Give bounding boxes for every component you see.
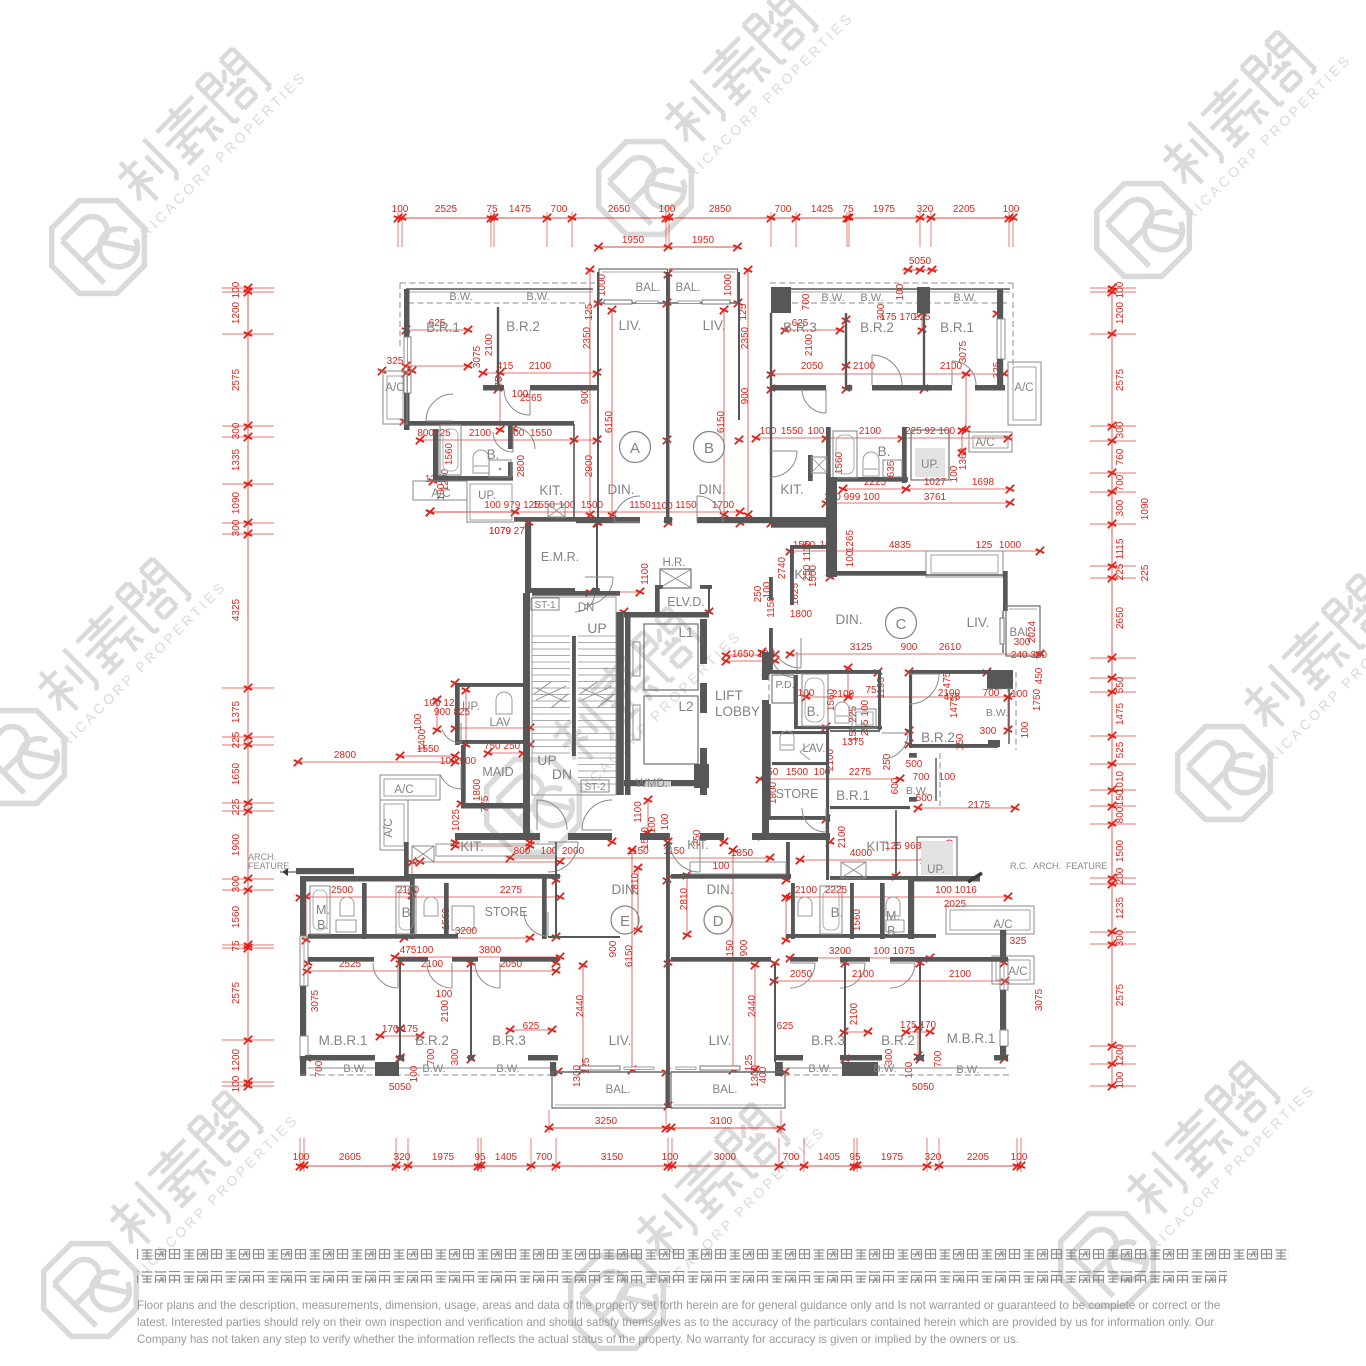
svg-text:LAV.: LAV. (802, 743, 825, 755)
svg-text:UP.: UP. (478, 490, 496, 502)
svg-text:B.R.2: B.R.2 (506, 319, 540, 334)
svg-text:B.W.: B.W. (526, 291, 549, 303)
svg-text:1425: 1425 (811, 204, 834, 215)
svg-text:1750: 1750 (1032, 688, 1043, 711)
svg-text:2525: 2525 (435, 204, 458, 215)
svg-text:M.: M. (316, 903, 330, 917)
svg-text:900: 900 (901, 642, 918, 653)
svg-text:100: 100 (798, 688, 815, 699)
svg-text:FEATURE: FEATURE (248, 861, 289, 871)
svg-text:6150: 6150 (716, 410, 727, 433)
svg-text:100: 100 (1115, 281, 1126, 298)
svg-text:B.R.3: B.R.3 (492, 1033, 526, 1048)
svg-text:1150: 1150 (629, 500, 651, 511)
svg-text:100: 100 (659, 204, 676, 215)
svg-text:E.M.R.: E.M.R. (541, 550, 579, 564)
svg-text:900: 900 (740, 387, 751, 404)
svg-text:3761: 3761 (924, 492, 947, 503)
svg-text:2100: 2100 (837, 825, 848, 848)
svg-text:1550: 1550 (533, 500, 556, 511)
svg-text:100: 100 (939, 772, 956, 783)
svg-text:1500: 1500 (1115, 839, 1126, 862)
svg-text:300: 300 (1115, 929, 1126, 946)
svg-text:1200: 1200 (1115, 1043, 1126, 1066)
svg-text:300: 300 (450, 1048, 461, 1065)
svg-text:625: 625 (777, 1021, 794, 1032)
svg-text:100: 100 (904, 1061, 915, 1078)
svg-text:1150: 1150 (675, 500, 697, 511)
svg-text:A/C: A/C (394, 784, 413, 796)
svg-text:B.W.: B.W. (906, 785, 928, 797)
svg-text:2440: 2440 (747, 994, 758, 1017)
svg-text:2605: 2605 (339, 1152, 362, 1163)
svg-text:1200: 1200 (231, 301, 242, 324)
svg-text:BAL.: BAL. (713, 1084, 738, 1096)
svg-text:B.: B. (487, 447, 500, 462)
svg-text:1698: 1698 (972, 477, 995, 488)
svg-text:1079: 1079 (489, 526, 512, 537)
svg-text:1800: 1800 (790, 609, 813, 620)
svg-text:KIT.: KIT. (780, 482, 803, 497)
svg-text:1550: 1550 (781, 426, 804, 437)
svg-text:2740: 2740 (777, 556, 788, 579)
svg-text:300: 300 (1115, 499, 1126, 516)
svg-text:225: 225 (1115, 563, 1126, 580)
svg-text:320: 320 (925, 1152, 942, 1163)
svg-text:B.W.: B.W. (821, 292, 844, 304)
svg-text:150: 150 (1115, 789, 1126, 806)
svg-text:700: 700 (1115, 474, 1126, 491)
svg-text:3150: 3150 (601, 1152, 624, 1163)
svg-text:2650: 2650 (1115, 606, 1126, 629)
svg-text:1000: 1000 (999, 540, 1022, 551)
svg-text:1335: 1335 (231, 448, 242, 471)
svg-text:3075: 3075 (1034, 988, 1045, 1011)
svg-text:1115: 1115 (1115, 538, 1126, 559)
svg-text:2205: 2205 (953, 204, 976, 215)
svg-text:700: 700 (536, 1152, 553, 1163)
svg-text:1090: 1090 (1140, 497, 1151, 520)
svg-text:2610: 2610 (939, 642, 962, 653)
svg-text:225: 225 (231, 731, 242, 748)
svg-text:3125: 3125 (850, 642, 873, 653)
svg-text:LIV.: LIV. (703, 318, 726, 333)
svg-text:2175: 2175 (968, 800, 991, 811)
svg-text:5050: 5050 (912, 1082, 935, 1093)
svg-text:2800: 2800 (516, 454, 527, 477)
svg-text:DIN.: DIN. (612, 882, 639, 897)
svg-text:2100: 2100 (440, 999, 451, 1022)
svg-text:100: 100 (231, 281, 242, 298)
svg-text:DN: DN (552, 766, 572, 782)
svg-text:P.D.: P.D. (775, 679, 794, 691)
svg-text:2350: 2350 (740, 326, 751, 349)
svg-text:R.C. ARCH. FEATURE: R.C. ARCH. FEATURE (1010, 861, 1107, 871)
svg-text:B.W.: B.W. (860, 292, 883, 304)
svg-text:B.W.: B.W. (986, 707, 1008, 719)
svg-text:1400: 1400 (417, 728, 428, 751)
svg-text:300: 300 (231, 422, 242, 439)
svg-text:800: 800 (1115, 806, 1126, 823)
svg-text:300: 300 (876, 303, 887, 320)
svg-text:1100: 1100 (633, 801, 644, 823)
svg-text:KIT.: KIT. (539, 483, 562, 498)
svg-text:1560: 1560 (444, 442, 455, 465)
svg-text:1950: 1950 (622, 235, 645, 246)
svg-text:2575: 2575 (231, 368, 242, 391)
svg-text:2275: 2275 (500, 885, 523, 896)
svg-text:3800: 3800 (479, 945, 502, 956)
svg-text:Company has not taken any step: Company has not taken any step to verify… (137, 1333, 1019, 1346)
svg-text:6150: 6150 (604, 410, 615, 433)
svg-text:1500: 1500 (581, 500, 604, 511)
svg-text:1027: 1027 (924, 477, 947, 488)
svg-text:A/C: A/C (383, 818, 395, 837)
svg-text:2440: 2440 (575, 994, 586, 1017)
svg-text:B.W.: B.W. (449, 291, 472, 303)
svg-text:700: 700 (775, 204, 792, 215)
svg-text:M.B.R.1: M.B.R.1 (947, 1031, 996, 1046)
svg-text:2100: 2100 (849, 1002, 860, 1025)
svg-text:1195: 1195 (876, 677, 887, 699)
svg-text:2800: 2800 (334, 750, 357, 761)
svg-text:1090: 1090 (231, 491, 242, 514)
svg-text:325: 325 (1010, 936, 1027, 947)
svg-text:STORE: STORE (485, 905, 528, 919)
svg-text:95: 95 (474, 1152, 486, 1163)
svg-text:700: 700 (933, 1050, 944, 1067)
svg-text:1115: 1115 (802, 540, 813, 561)
svg-text:95: 95 (849, 1152, 861, 1163)
svg-text:225: 225 (231, 798, 242, 815)
svg-text:MAID: MAID (482, 765, 513, 779)
svg-text:ELV.D.: ELV.D. (667, 595, 705, 609)
svg-text:B.W.: B.W. (343, 1063, 366, 1075)
svg-text:100: 100 (713, 861, 730, 872)
svg-text:225: 225 (1140, 564, 1151, 581)
svg-text:A/C: A/C (431, 488, 450, 500)
svg-text:BAL.: BAL. (1010, 627, 1035, 639)
svg-text:2100: 2100 (469, 428, 492, 439)
svg-text:2575: 2575 (1115, 368, 1126, 391)
svg-text:LIV.: LIV. (967, 615, 990, 630)
svg-text:UP.: UP. (921, 459, 939, 471)
svg-text:600: 600 (890, 777, 901, 794)
svg-text:4325: 4325 (231, 598, 242, 621)
svg-text:C: C (896, 616, 907, 633)
svg-text:100 1016: 100 1016 (935, 885, 977, 896)
svg-text:1200: 1200 (1115, 301, 1126, 324)
svg-text:100: 100 (417, 945, 434, 956)
svg-text:1560: 1560 (231, 905, 242, 928)
svg-text:B.W.: B.W. (496, 1063, 519, 1075)
svg-text:320: 320 (917, 204, 934, 215)
svg-text:A: A (630, 440, 640, 457)
svg-text:75: 75 (842, 204, 854, 215)
svg-text:75: 75 (231, 940, 242, 952)
svg-text:1200: 1200 (231, 1048, 242, 1071)
svg-text:DIN.: DIN. (699, 482, 726, 497)
svg-text:100: 100 (392, 204, 409, 215)
svg-text:625: 625 (523, 1021, 540, 1032)
svg-text:1950: 1950 (692, 235, 715, 246)
svg-text:3000: 3000 (714, 1152, 737, 1163)
svg-text:1025: 1025 (451, 808, 462, 831)
svg-text:100: 100 (1115, 1071, 1126, 1088)
svg-text:LIV.: LIV. (609, 1033, 632, 1048)
svg-text:635: 635 (886, 460, 897, 477)
svg-text:100: 100 (231, 1075, 242, 1092)
svg-text:2100: 2100 (804, 333, 815, 356)
svg-text:1700: 1700 (712, 500, 735, 511)
svg-text:3075: 3075 (958, 340, 969, 363)
svg-text:1405: 1405 (818, 1152, 841, 1163)
svg-text:BAL.: BAL. (636, 282, 661, 294)
svg-text:1975: 1975 (432, 1152, 455, 1163)
svg-text:BAL.: BAL. (606, 1084, 631, 1096)
svg-text:M.B.R.1: M.B.R.1 (319, 1033, 368, 1048)
svg-text:700: 700 (913, 772, 930, 783)
svg-text:2100: 2100 (859, 426, 882, 437)
svg-text:250: 250 (882, 753, 893, 770)
svg-text:B.R.2: B.R.2 (921, 730, 955, 745)
svg-text:B.W.: B.W. (808, 1063, 831, 1075)
svg-text:A/C: A/C (993, 919, 1012, 931)
svg-text:100: 100 (1020, 721, 1031, 738)
svg-text:475: 475 (400, 945, 417, 956)
svg-text:L2: L2 (678, 699, 693, 714)
svg-text:ST-1: ST-1 (534, 600, 556, 611)
svg-text:UP: UP (587, 620, 606, 636)
svg-text:LIV.: LIV. (619, 318, 642, 333)
svg-text:B.R.1: B.R.1 (940, 320, 974, 335)
svg-text:DIN.: DIN. (608, 482, 635, 497)
svg-text:125: 125 (976, 540, 993, 551)
svg-text:2500: 2500 (331, 885, 354, 896)
svg-text:B: B (704, 440, 714, 457)
svg-text:2025: 2025 (944, 899, 967, 910)
svg-text:100: 100 (436, 989, 453, 1000)
svg-text:2100: 2100 (852, 969, 875, 980)
svg-text:1550: 1550 (530, 428, 553, 439)
svg-text:B.: B. (831, 905, 844, 920)
svg-text:A/C: A/C (975, 437, 994, 449)
svg-text:5050: 5050 (389, 1082, 412, 1093)
svg-text:1650: 1650 (732, 649, 755, 660)
svg-text:B.R.3: B.R.3 (811, 1033, 845, 1048)
svg-text:A/C: A/C (1014, 382, 1033, 394)
svg-text:WMD.: WMD. (636, 778, 668, 790)
svg-text:E: E (620, 913, 630, 930)
svg-text:250: 250 (753, 585, 764, 602)
svg-text:3075: 3075 (310, 989, 321, 1012)
svg-text:3100: 3100 (710, 1116, 733, 1127)
svg-text:latest. Interested parties sho: latest. Interested parties should rely o… (137, 1316, 1214, 1329)
svg-text:700: 700 (783, 1152, 800, 1163)
svg-text:2900: 2900 (584, 454, 595, 477)
svg-text:100 1075: 100 1075 (873, 946, 915, 957)
svg-text:LIV.: LIV. (709, 1033, 732, 1048)
svg-text:2565: 2565 (520, 393, 543, 404)
svg-text:ST-2: ST-2 (584, 782, 606, 793)
svg-text:2275: 2275 (849, 767, 872, 778)
svg-text:B.W.: B.W. (953, 292, 976, 304)
svg-text:100: 100 (1011, 1152, 1028, 1163)
svg-text:1475: 1475 (1115, 702, 1126, 725)
svg-text:1900: 1900 (231, 833, 242, 856)
svg-text:B.: B. (402, 905, 415, 920)
svg-text:100: 100 (662, 1152, 679, 1163)
svg-text:BAL.: BAL. (676, 282, 701, 294)
svg-text:6150: 6150 (624, 944, 635, 967)
svg-text:KIT.: KIT. (687, 838, 709, 852)
svg-text:UP.: UP. (462, 701, 480, 713)
svg-text:2205: 2205 (967, 1152, 990, 1163)
svg-text:300: 300 (231, 519, 242, 536)
svg-text:B.R.2: B.R.2 (860, 320, 894, 335)
svg-text:320: 320 (394, 1152, 411, 1163)
svg-text:75: 75 (486, 204, 498, 215)
svg-text:100: 100 (949, 465, 960, 482)
svg-text:100: 100 (660, 813, 671, 830)
svg-text:450: 450 (1034, 667, 1045, 684)
svg-text:700: 700 (801, 293, 812, 310)
svg-text:3075: 3075 (472, 345, 483, 368)
svg-text:DIN.: DIN. (707, 882, 734, 897)
svg-text:2100: 2100 (484, 333, 495, 356)
svg-text:100: 100 (845, 550, 856, 567)
svg-text:UP.: UP. (927, 864, 945, 876)
svg-text:Floor plans and the descriptio: Floor plans and the description, measure… (137, 1299, 1220, 1312)
svg-text:2650: 2650 (608, 204, 631, 215)
svg-text:1100: 1100 (651, 501, 673, 512)
svg-text:B.W.: B.W. (873, 1063, 896, 1075)
svg-text:325: 325 (387, 356, 404, 367)
svg-text:2850: 2850 (709, 204, 732, 215)
svg-text:LAV: LAV (490, 717, 511, 729)
svg-text:2050: 2050 (801, 361, 824, 372)
svg-text:100: 100 (760, 426, 777, 437)
svg-text:125: 125 (744, 1054, 755, 1071)
svg-text:1850: 1850 (731, 848, 754, 859)
svg-text:H.R.: H.R. (663, 557, 686, 569)
svg-text:1650: 1650 (231, 762, 242, 785)
svg-text:2100: 2100 (795, 885, 818, 896)
svg-text:1265: 1265 (845, 529, 856, 552)
svg-text:1975: 1975 (873, 204, 896, 215)
svg-text:1375: 1375 (231, 700, 242, 723)
svg-text:2000: 2000 (562, 846, 585, 857)
svg-text:700: 700 (983, 688, 1000, 699)
svg-text:300: 300 (980, 726, 997, 737)
svg-text:300: 300 (231, 875, 242, 892)
svg-text:760: 760 (1115, 448, 1126, 465)
svg-text:2100: 2100 (949, 969, 972, 980)
svg-text:1000: 1000 (723, 273, 734, 296)
svg-text:3250: 3250 (595, 1116, 618, 1127)
svg-text:225 92 100: 225 92 100 (905, 426, 955, 437)
svg-text:415: 415 (497, 361, 514, 372)
svg-text:2575: 2575 (231, 981, 242, 1004)
svg-text:900: 900 (739, 939, 750, 956)
svg-text:100: 100 (413, 713, 424, 730)
svg-text:B.: B. (807, 704, 820, 719)
svg-text:L1: L1 (678, 625, 693, 640)
svg-text:125 966: 125 966 (885, 841, 922, 852)
svg-text:1500: 1500 (786, 767, 809, 778)
svg-text:1975: 1975 (881, 1152, 904, 1163)
svg-text:700: 700 (551, 204, 568, 215)
svg-text:525: 525 (1115, 741, 1126, 758)
svg-text:A/C: A/C (385, 382, 404, 394)
svg-text:2100: 2100 (529, 361, 552, 372)
svg-text:1100: 1100 (640, 563, 651, 585)
svg-text:A/C: A/C (1008, 966, 1027, 978)
svg-text:150 225: 150 225 (848, 705, 859, 742)
svg-text:1475: 1475 (949, 695, 960, 718)
svg-text:B.: B. (887, 924, 899, 938)
svg-text:2810: 2810 (679, 887, 690, 910)
svg-text:B.R.2: B.R.2 (881, 1033, 915, 1048)
svg-text:1235: 1235 (1115, 896, 1126, 919)
svg-text:B.R.3: B.R.3 (783, 320, 817, 335)
svg-text:LOBBY: LOBBY (715, 704, 760, 719)
svg-text:100 900: 100 900 (440, 756, 477, 767)
svg-text:B.R.2: B.R.2 (415, 1033, 449, 1048)
svg-text:100: 100 (1003, 204, 1020, 215)
svg-text:900: 900 (608, 940, 619, 957)
svg-text:DIN.: DIN. (836, 612, 863, 627)
svg-text:B.W.: B.W. (956, 1064, 979, 1076)
svg-text:STORE: STORE (776, 787, 819, 801)
svg-text:B.R.1: B.R.1 (836, 788, 870, 803)
svg-text:550: 550 (1115, 676, 1126, 693)
svg-text:D: D (713, 913, 724, 930)
svg-text:2350: 2350 (582, 326, 593, 349)
svg-text:1405: 1405 (495, 1152, 518, 1163)
svg-text:125: 125 (584, 303, 595, 320)
svg-text:B.W.: B.W. (422, 1063, 445, 1075)
svg-text:KIT.: KIT. (866, 839, 889, 854)
svg-text:B.R.1: B.R.1 (426, 320, 460, 335)
svg-text:500: 500 (906, 759, 923, 770)
svg-text:DN: DN (578, 602, 595, 614)
svg-text:KIT.: KIT. (460, 839, 483, 854)
svg-text:M.: M. (886, 909, 900, 923)
svg-text:KIT.: KIT. (794, 567, 817, 582)
svg-text:1475: 1475 (509, 204, 532, 215)
svg-text:B.: B. (317, 918, 329, 932)
svg-text:300: 300 (1115, 421, 1126, 438)
svg-text:200: 200 (1115, 867, 1126, 884)
svg-text:B.: B. (878, 444, 891, 459)
svg-text:LIFT: LIFT (715, 688, 743, 703)
svg-text:100: 100 (293, 1152, 310, 1163)
svg-text:5050: 5050 (909, 256, 932, 267)
svg-text:4835: 4835 (889, 540, 912, 551)
svg-text:3200: 3200 (829, 946, 852, 957)
svg-text:2575: 2575 (1115, 983, 1126, 1006)
svg-text:400: 400 (758, 1066, 769, 1083)
